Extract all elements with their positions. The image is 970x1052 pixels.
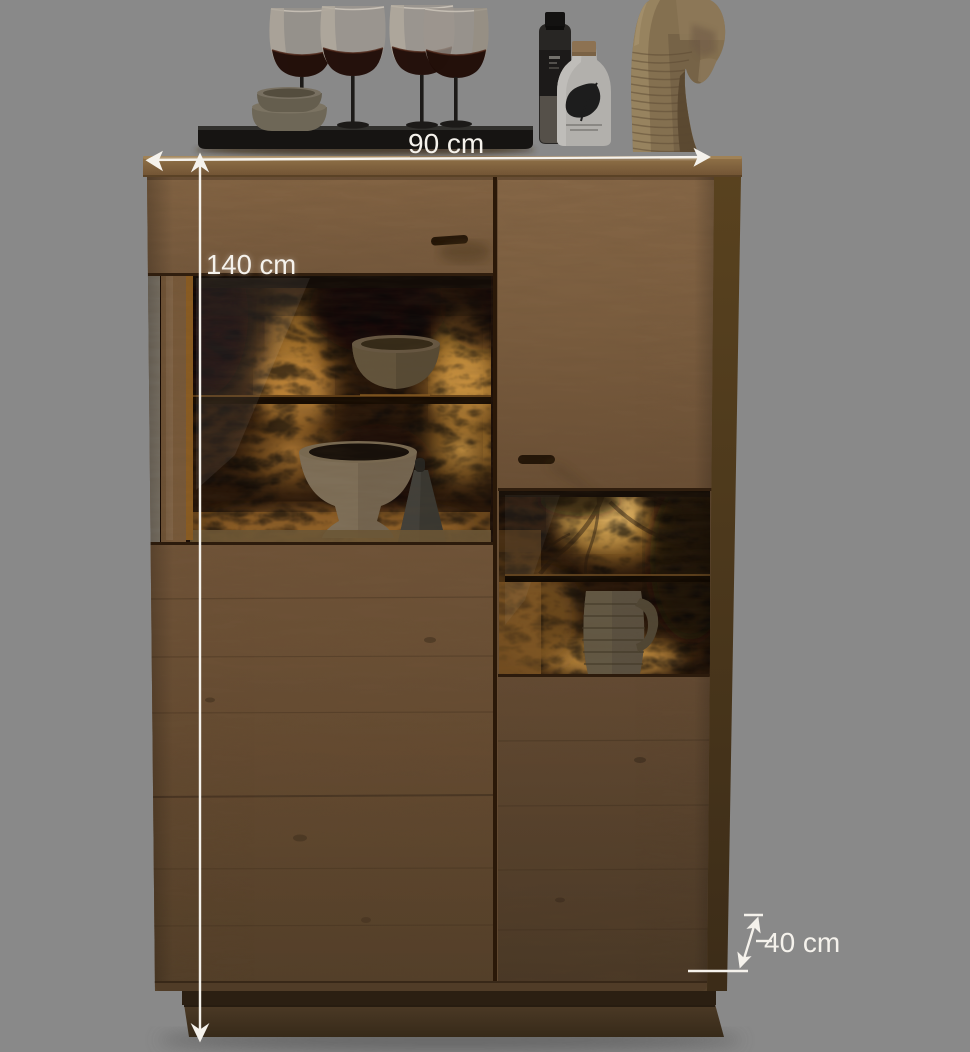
svg-text:140 cm: 140 cm <box>206 249 296 280</box>
svg-text:90 cm: 90 cm <box>408 128 484 159</box>
svg-text:40 cm: 40 cm <box>764 927 840 958</box>
